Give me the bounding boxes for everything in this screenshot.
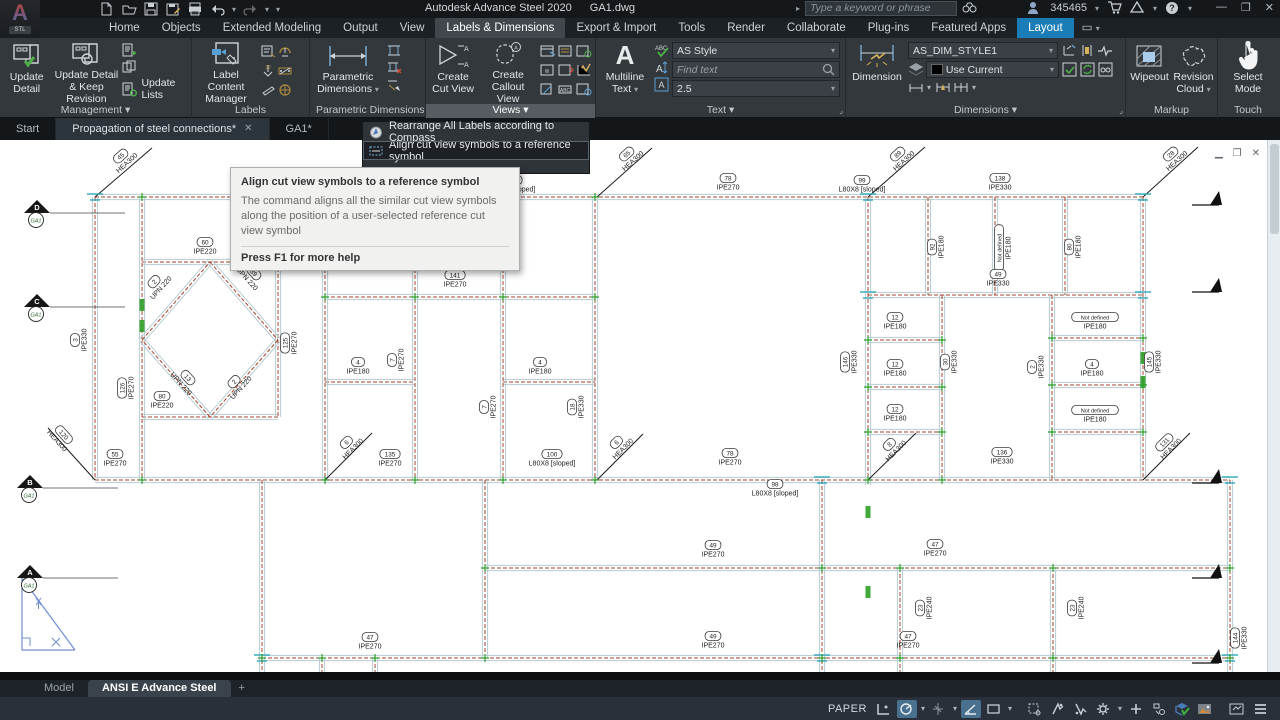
beam-label: 7IPE270 xyxy=(388,348,406,371)
beam-label: 146IPE330 xyxy=(841,350,859,373)
svg-text:4: 4 xyxy=(538,359,542,366)
layer-select[interactable]: Use Current▾ xyxy=(926,61,1059,78)
layout-tab-bar: Model ANSI E Advance Steel + xyxy=(0,680,1280,697)
svg-text:A: A xyxy=(27,568,33,577)
create-cut-view-button[interactable]: AA Create Cut View xyxy=(429,40,477,102)
dim-link-icon[interactable] xyxy=(1098,62,1113,77)
beam-label: 89HEA300 xyxy=(885,142,916,173)
svg-text:A: A xyxy=(514,46,518,52)
beam-label: 6HEA300 xyxy=(334,430,365,461)
svg-text:80: 80 xyxy=(158,393,166,400)
svg-text:80: 80 xyxy=(1066,243,1073,251)
svg-text:141: 141 xyxy=(450,272,461,279)
parametric-dimensions-icon xyxy=(326,41,370,71)
fullscreen-icon[interactable] xyxy=(1227,700,1247,718)
grid-bubble-a: AGA1 xyxy=(17,565,118,593)
ribbon-tab-plug-ins[interactable]: Plug-ins xyxy=(857,18,921,38)
svg-text:55: 55 xyxy=(111,451,119,458)
svg-text:A: A xyxy=(656,64,663,75)
beam-label: 47IPE270 xyxy=(924,540,947,558)
ribbon-tab-export-import[interactable]: Export & Import xyxy=(565,18,667,38)
ribbon-tab-featured-apps[interactable]: Featured Apps xyxy=(920,18,1017,38)
beam-label: 4IPE180 xyxy=(529,358,552,376)
check-spelling-icon[interactable]: ABC xyxy=(654,43,669,58)
svg-text:Not defined: Not defined xyxy=(997,234,1003,263)
plot-icon[interactable] xyxy=(188,2,203,16)
panel-label-views[interactable]: Views ▾ xyxy=(426,104,595,118)
update-lists-icon[interactable] xyxy=(122,82,137,97)
text-height-select[interactable]: 2.5▾ xyxy=(672,80,840,97)
svg-text:IPE330: IPE330 xyxy=(987,281,1010,288)
dimension-button[interactable]: Dimension xyxy=(849,40,905,102)
open-file-icon[interactable] xyxy=(122,2,137,16)
svg-text:47: 47 xyxy=(931,541,939,548)
panel-management: Update Detail Update Detail & Keep Revis… xyxy=(0,38,192,118)
create-cut-view-label: Create Cut View xyxy=(429,71,477,95)
plan-drawing: 66IPE270100L80X8 [sloped]78IPE27099L80X8… xyxy=(0,140,1280,672)
svg-text:4: 4 xyxy=(1090,361,1094,368)
panel-markup: Wipeout Revision Cloud ▾ Markup xyxy=(1126,38,1218,118)
svg-text:3: 3 xyxy=(72,338,79,342)
close-button[interactable]: ✕ xyxy=(1265,1,1274,14)
svg-text:IPE270: IPE270 xyxy=(702,552,725,559)
ribbon-tab-collaborate[interactable]: Collaborate xyxy=(776,18,857,38)
revision-cloud-icon xyxy=(1178,41,1210,71)
beam-label: 23IPE240 xyxy=(1068,596,1086,619)
svg-text:12: 12 xyxy=(891,314,899,321)
minimize-button[interactable]: — xyxy=(1216,1,1227,14)
label-icon-3[interactable]: 32 xyxy=(261,63,276,78)
beam-label: 7IPE270 xyxy=(480,395,498,418)
svg-text:12: 12 xyxy=(891,406,899,413)
svg-text:IPE180: IPE180 xyxy=(347,369,370,376)
svg-text:IPE270: IPE270 xyxy=(359,644,382,651)
svg-text:IPE180: IPE180 xyxy=(1076,235,1083,258)
svg-text:B: B xyxy=(27,478,33,487)
svg-text:IPE330: IPE330 xyxy=(952,350,959,373)
panel-label-management[interactable]: Management ▾ xyxy=(0,104,191,118)
svg-text:IPE240: IPE240 xyxy=(1079,596,1086,619)
beam-label: 23IPE240 xyxy=(916,596,934,619)
app-title: Autodesk Advance Steel 2020 xyxy=(425,2,572,14)
undo-icon[interactable] xyxy=(210,2,225,16)
beam-label: Not definedIPE180 xyxy=(1072,406,1119,424)
panel-label-dimensions[interactable]: Dimensions ▾⌟ xyxy=(846,104,1125,118)
tooltip-footer: Press F1 for more help xyxy=(241,252,509,264)
create-callout-view-label: Create Callout View xyxy=(480,69,536,105)
drawing-restore-icon[interactable]: ❐ xyxy=(1233,148,1242,159)
ortho-mode-icon[interactable] xyxy=(984,700,1004,718)
ribbon-tab-view[interactable]: View xyxy=(389,18,436,38)
selection-cycling-icon[interactable] xyxy=(1025,700,1045,718)
text-frame-icon[interactable]: A xyxy=(654,77,669,92)
view-icon-7[interactable] xyxy=(540,82,555,97)
beam-label: 12IPE180 xyxy=(884,405,907,423)
beam-label: 8HEA300 xyxy=(877,432,908,463)
svg-text:IPE240: IPE240 xyxy=(927,596,934,619)
view-icon-8[interactable]: ABC xyxy=(558,82,573,97)
svg-text:ABC: ABC xyxy=(560,88,571,94)
file-tab-close-icon[interactable]: ✕ xyxy=(244,118,252,140)
text-style-select[interactable]: AS Style▾ xyxy=(672,42,840,59)
svg-text:IPE270: IPE270 xyxy=(897,643,920,650)
ribbon-tab-render[interactable]: Render xyxy=(716,18,776,38)
update-detail-keep-revision-button[interactable]: Update Detail & Keep Revision xyxy=(53,40,119,102)
svg-text:IPE330: IPE330 xyxy=(1242,626,1249,649)
beam-label: 141IPE270 xyxy=(444,271,467,289)
svg-text:IPE180: IPE180 xyxy=(1006,236,1013,259)
svg-text:92: 92 xyxy=(929,243,936,251)
panel-label-text[interactable]: Text ▾⌟ xyxy=(596,104,845,118)
wipeout-button[interactable]: Wipeout xyxy=(1129,40,1170,102)
layer-color-swatch xyxy=(931,64,943,75)
beam-label: 18IPE330 xyxy=(568,395,586,418)
beam-label: 78IPE270 xyxy=(719,449,742,467)
ribbon-tab-output[interactable]: Output xyxy=(332,18,389,38)
beam-label: 4IPE180 xyxy=(1081,360,1104,378)
label-icon-1[interactable] xyxy=(261,44,276,59)
grid-bubble-d: DGA1 xyxy=(24,200,125,228)
user-caret-icon[interactable]: ▾ xyxy=(1095,4,1099,13)
menu-item-align-cut-view[interactable]: Align cut view symbols to a reference sy… xyxy=(363,141,589,160)
ribbon-tab-layout[interactable]: Layout xyxy=(1017,18,1074,38)
text-align-icon[interactable]: A xyxy=(654,60,669,75)
svg-text:IPE270: IPE270 xyxy=(444,282,467,289)
file-tab-start[interactable]: Start xyxy=(0,118,56,140)
multiline-text-button[interactable]: A Multiline Text ▾ xyxy=(599,40,651,102)
dim-jog-icon[interactable] xyxy=(1097,43,1112,58)
title-bar: A STL ▾ ▾ ▾ Autodesk Advance Steel 2020G… xyxy=(0,0,1280,18)
grid-display-icon[interactable] xyxy=(874,700,894,718)
object-snap-tracking-icon[interactable] xyxy=(929,700,949,718)
undo-caret-icon[interactable]: ▾ xyxy=(232,5,236,14)
beam-label: Not definedIPE180 xyxy=(995,225,1013,272)
svg-text:Not defined: Not defined xyxy=(1081,315,1110,321)
sign-in-user-icon[interactable] xyxy=(1027,1,1042,15)
new-file-icon[interactable] xyxy=(100,2,115,16)
parametric-dimensions-button[interactable]: Parametric Dimensions ▾ xyxy=(313,40,383,102)
account-caret-icon[interactable]: ▾ xyxy=(1153,4,1157,13)
svg-text:135: 135 xyxy=(385,451,396,458)
svg-text:IPE270: IPE270 xyxy=(129,376,136,399)
save-as-icon[interactable] xyxy=(166,2,181,16)
view-icon-2[interactable] xyxy=(558,44,573,59)
svg-text:IPE270: IPE270 xyxy=(491,395,498,418)
svg-text:144: 144 xyxy=(1232,632,1239,643)
svg-text:47: 47 xyxy=(904,633,912,640)
view-icon-9[interactable] xyxy=(576,82,591,97)
find-text-magnifier-icon xyxy=(822,63,835,76)
drawing-minimize-icon[interactable]: ▁ xyxy=(1215,148,1223,159)
create-callout-view-button[interactable]: A Create Callout View xyxy=(480,40,536,102)
ribbon-tab-objects[interactable]: Objects xyxy=(151,18,212,38)
dim-style-select[interactable]: AS_DIM_STYLE1▾ xyxy=(908,42,1058,59)
svg-text:98: 98 xyxy=(771,481,779,488)
label-icon-2[interactable] xyxy=(278,44,293,59)
help-caret-icon[interactable]: ▾ xyxy=(1188,4,1192,13)
svg-text:136: 136 xyxy=(997,449,1008,456)
dim-spacing-icon[interactable] xyxy=(1079,43,1094,58)
title-bar-right: 345465 ▾ ▾ ? ▾ xyxy=(1027,1,1192,15)
restore-button[interactable]: ❐ xyxy=(1241,1,1251,14)
svg-text:GA1: GA1 xyxy=(23,584,34,590)
svg-text:2: 2 xyxy=(1029,365,1036,369)
svg-text:D: D xyxy=(34,203,40,212)
customization-menu-icon[interactable] xyxy=(1250,700,1270,718)
dim-continue-icon[interactable] xyxy=(953,80,968,95)
beam-label: 99L80X8 [sloped] xyxy=(839,176,886,194)
grid-bubble-b: BGA1 xyxy=(17,475,118,503)
svg-text:IPE330: IPE330 xyxy=(1039,355,1046,378)
app-store-cart-icon[interactable] xyxy=(1107,1,1122,15)
view-icon-5[interactable] xyxy=(558,63,573,78)
autodesk-account-icon[interactable] xyxy=(1130,1,1145,15)
dim-quick-icon[interactable] xyxy=(935,80,950,95)
beam-label: 60IPE220 xyxy=(194,238,217,256)
annotation-scale-icon[interactable] xyxy=(1071,700,1091,718)
svg-text:146: 146 xyxy=(842,356,849,367)
dimension-icon xyxy=(857,41,897,71)
dimensions-panel-expand-icon[interactable]: ⌟ xyxy=(1119,104,1123,117)
label-icon-6[interactable] xyxy=(278,82,293,97)
panel-labels: Label Content Manager 32 Labels xyxy=(192,38,310,118)
beam-label: 136IPE330 xyxy=(991,448,1014,466)
tab-model[interactable]: Model xyxy=(30,680,88,697)
layers-icon xyxy=(908,62,923,77)
label-icon-4[interactable] xyxy=(278,63,293,78)
svg-text:IPE330: IPE330 xyxy=(82,328,89,351)
revision-cloud-label: Revision Cloud ▾ xyxy=(1173,71,1214,95)
panel-views: AA Create Cut View A Create Callout View… xyxy=(426,38,596,118)
svg-text:7: 7 xyxy=(389,358,396,362)
svg-text:IPE270: IPE270 xyxy=(719,460,742,467)
svg-text:145: 145 xyxy=(1146,356,1153,367)
label-content-manager-button[interactable]: Label Content Manager xyxy=(195,40,257,102)
viewport-bottom-gap xyxy=(0,672,1280,680)
update-detail-keep-revision-icon xyxy=(71,41,101,69)
create-cut-view-icon: AA xyxy=(436,41,470,71)
svg-text:L80X8 [sloped]: L80X8 [sloped] xyxy=(839,187,886,194)
svg-text:IPE180: IPE180 xyxy=(884,371,907,378)
svg-text:23: 23 xyxy=(917,604,924,612)
svg-text:47: 47 xyxy=(366,634,374,641)
snap-mode-icon[interactable] xyxy=(897,700,917,718)
param-dim-delete-icon[interactable] xyxy=(386,60,401,75)
svg-text:IPE270: IPE270 xyxy=(924,551,947,558)
drawing-close-icon[interactable]: ✕ xyxy=(1252,148,1260,159)
svg-text:IPE270: IPE270 xyxy=(104,461,127,468)
label-icon-5[interactable] xyxy=(261,82,276,97)
status-bar: PAPER ▾ ▾ ▾ ▾ xyxy=(0,697,1280,720)
document-title: GA1.dwg xyxy=(590,2,635,14)
svg-text:IPE180: IPE180 xyxy=(529,369,552,376)
beam-label: 45HEA300 xyxy=(108,144,139,175)
view-icon-1[interactable] xyxy=(540,44,555,59)
update-lists-label[interactable]: Update Lists xyxy=(141,77,188,101)
beam-label: 12IPE180 xyxy=(884,313,907,331)
svg-text:GA1: GA1 xyxy=(23,494,34,500)
dim-update-icon[interactable] xyxy=(1080,62,1095,77)
svg-text:99: 99 xyxy=(858,177,866,184)
param-dim-edit-icon[interactable] xyxy=(386,77,401,92)
svg-text:IPE270: IPE270 xyxy=(702,643,725,650)
isolate-objects-icon[interactable] xyxy=(1149,700,1169,718)
update-list-add-icon[interactable] xyxy=(122,43,137,58)
panel-label-markup[interactable]: Markup xyxy=(1126,104,1217,118)
beam-label: 49IPE270 xyxy=(702,632,725,650)
dim-check-icon[interactable] xyxy=(1062,62,1077,77)
ribbon-tab-tools[interactable]: Tools xyxy=(667,18,716,38)
svg-text:125: 125 xyxy=(282,337,289,348)
tab-ansi-e-advance-steel[interactable]: ANSI E Advance Steel xyxy=(88,680,231,697)
beam-label: 138IPE330 xyxy=(989,174,1012,192)
panel-label-parametric[interactable]: Parametric Dimensions xyxy=(310,104,425,118)
search-toggle-icon[interactable]: ▸ xyxy=(796,4,800,13)
beam-label: 100L80X8 [sloped] xyxy=(529,450,576,468)
label-content-manager-label: Label Content Manager xyxy=(195,69,257,105)
wipeout-icon xyxy=(1135,41,1165,71)
redo-caret-icon[interactable]: ▾ xyxy=(265,5,269,14)
redo-icon[interactable] xyxy=(243,2,258,16)
parametric-dimensions-label: Parametric Dimensions ▾ xyxy=(313,71,383,95)
tooltip-divider xyxy=(241,246,509,247)
paper-space-label[interactable]: PAPER xyxy=(828,703,867,715)
snap-caret-icon[interactable]: ▾ xyxy=(921,704,925,713)
search-input[interactable]: Type a keyword or phrase xyxy=(805,1,957,16)
beam-label: 55IPE270 xyxy=(104,450,127,468)
window-controls: — ❐ ✕ xyxy=(1216,1,1274,14)
svg-text:4: 4 xyxy=(356,359,360,366)
file-tab-ga1-[interactable]: GA1* xyxy=(270,118,329,140)
dim-linear-icon[interactable] xyxy=(908,80,923,95)
dim-break-icon[interactable] xyxy=(1061,43,1076,58)
svg-text:32: 32 xyxy=(265,65,271,71)
panel-dimensions: Dimension AS_DIM_STYLE1▾ Use Current▾ xyxy=(846,38,1126,118)
qat-customize-icon[interactable]: ▾ xyxy=(276,5,280,14)
svg-text:7: 7 xyxy=(481,405,488,409)
plus-icon[interactable] xyxy=(1126,700,1146,718)
multiline-text-icon: A xyxy=(616,41,635,71)
update-detail-keep-revision-label: Update Detail & Keep Revision xyxy=(53,69,119,105)
panel-label-touch[interactable]: Touch xyxy=(1218,104,1278,118)
beam-label: 30IPE330 xyxy=(941,350,959,373)
beam-label: 135IPE270 xyxy=(379,450,402,468)
param-dim-chain-icon[interactable] xyxy=(386,43,401,58)
file-tab-propagation-of-steel-connections-[interactable]: Propagation of steel connections*✕ xyxy=(56,118,269,140)
beam-label: 2UPN 220 xyxy=(141,268,173,301)
ortho-caret-icon[interactable]: ▾ xyxy=(1008,704,1012,713)
hardware-acceleration-icon[interactable] xyxy=(1172,700,1192,718)
panel-touch: Select Mode Touch xyxy=(1218,38,1278,118)
command-tooltip: Align cut view symbols to a reference sy… xyxy=(230,167,520,271)
app-logo[interactable]: A STL xyxy=(0,0,40,38)
svg-text:49: 49 xyxy=(994,271,1002,278)
svg-text:23: 23 xyxy=(1069,604,1076,612)
beam-label: 13UPN 220 xyxy=(168,364,200,397)
svg-text:IPE330: IPE330 xyxy=(579,395,586,418)
copy-detail-icon[interactable] xyxy=(122,60,137,75)
beam-label: 78IPE270 xyxy=(717,174,740,192)
beam-label: 47IPE270 xyxy=(359,633,382,651)
update-detail-button[interactable]: Update Detail xyxy=(3,40,50,102)
svg-text:78: 78 xyxy=(726,450,734,457)
scrollbar-thumb[interactable] xyxy=(1270,144,1279,234)
svg-text:12: 12 xyxy=(891,361,899,368)
polar-tracking-icon[interactable] xyxy=(961,700,981,718)
drawing-viewport[interactable]: 66IPE270100L80X8 [sloped]78IPE27099L80X8… xyxy=(0,140,1280,672)
beam-label: 4IPE180 xyxy=(347,358,370,376)
svg-text:49: 49 xyxy=(709,633,717,640)
create-callout-view-icon: A xyxy=(493,41,523,69)
svg-text:L80X8 [sloped]: L80X8 [sloped] xyxy=(752,491,799,498)
annotation-monitor-icon[interactable] xyxy=(1048,700,1068,718)
beam-label: 120HEA300 xyxy=(45,422,76,453)
image-quality-icon[interactable] xyxy=(1195,700,1215,718)
ribbon-tab-labels-dimensions[interactable]: Labels & Dimensions xyxy=(435,18,565,38)
workspace-caret-icon[interactable]: ▾ xyxy=(1118,704,1122,713)
select-mode-button[interactable]: Select Mode xyxy=(1223,40,1273,102)
find-text-input[interactable]: Find text xyxy=(672,61,840,78)
panel-text: A Multiline Text ▾ ABC A A AS Style▾ Fin… xyxy=(596,38,846,118)
osnap-caret-icon[interactable]: ▾ xyxy=(953,704,957,713)
ribbon-tab-extended-modeling[interactable]: Extended Modeling xyxy=(212,18,332,38)
svg-text:100: 100 xyxy=(547,451,558,458)
wipeout-label: Wipeout xyxy=(1130,71,1169,83)
help-icon[interactable]: ? xyxy=(1165,1,1180,15)
view-icon-3[interactable] xyxy=(576,44,591,59)
svg-text:A: A xyxy=(464,46,469,53)
svg-text:IPE270: IPE270 xyxy=(717,185,740,192)
svg-text:IPE220: IPE220 xyxy=(194,249,217,256)
ribbon-display-toggle-icon[interactable]: ▭ ▾ xyxy=(1074,18,1108,38)
beam-label: 125IPE270 xyxy=(281,331,299,354)
select-mode-hand-icon xyxy=(1236,41,1260,71)
ribbon-tab-home[interactable]: Home xyxy=(98,18,151,38)
svg-text:IPE180: IPE180 xyxy=(884,324,907,331)
vertical-scrollbar[interactable] xyxy=(1267,140,1280,672)
svg-text:IPE180: IPE180 xyxy=(1084,324,1107,331)
svg-text:IPE330: IPE330 xyxy=(1156,350,1163,373)
svg-text:GA1: GA1 xyxy=(30,219,41,225)
svg-text:IPE180: IPE180 xyxy=(884,416,907,423)
beam-label: 2IPE330 xyxy=(1028,355,1046,378)
search-area: ▸ Type a keyword or phrase xyxy=(796,1,977,16)
svg-text:30: 30 xyxy=(942,358,949,366)
panel-label-labels[interactable]: Labels xyxy=(192,104,309,118)
app-logo-letter: A xyxy=(0,0,40,26)
text-panel-expand-icon[interactable]: ⌟ xyxy=(839,104,843,117)
dimension-label: Dimension xyxy=(852,71,902,83)
svg-text:≋: ≋ xyxy=(544,69,549,75)
beam-label: 6HEA300 xyxy=(604,430,635,461)
add-layout-button[interactable]: + xyxy=(231,680,253,697)
save-icon[interactable] xyxy=(144,2,159,16)
user-id[interactable]: 345465 xyxy=(1050,2,1087,14)
beam-label: 12IPE180 xyxy=(884,360,907,378)
svg-text:138: 138 xyxy=(995,175,1006,182)
view-icon-4[interactable]: ≋ xyxy=(540,63,555,78)
workspace-gear-icon[interactable] xyxy=(1094,700,1114,718)
svg-text:Not defined: Not defined xyxy=(1081,408,1110,414)
ribbon: Update Detail Update Detail & Keep Revis… xyxy=(0,38,1280,118)
svg-text:IPE180: IPE180 xyxy=(939,235,946,258)
update-detail-icon xyxy=(12,41,42,71)
svg-text:IPE330: IPE330 xyxy=(852,350,859,373)
view-icon-6[interactable] xyxy=(576,63,591,78)
search-binoculars-icon[interactable] xyxy=(962,2,977,16)
svg-text:?: ? xyxy=(1169,3,1175,13)
revision-cloud-button[interactable]: Revision Cloud ▾ xyxy=(1173,40,1214,102)
